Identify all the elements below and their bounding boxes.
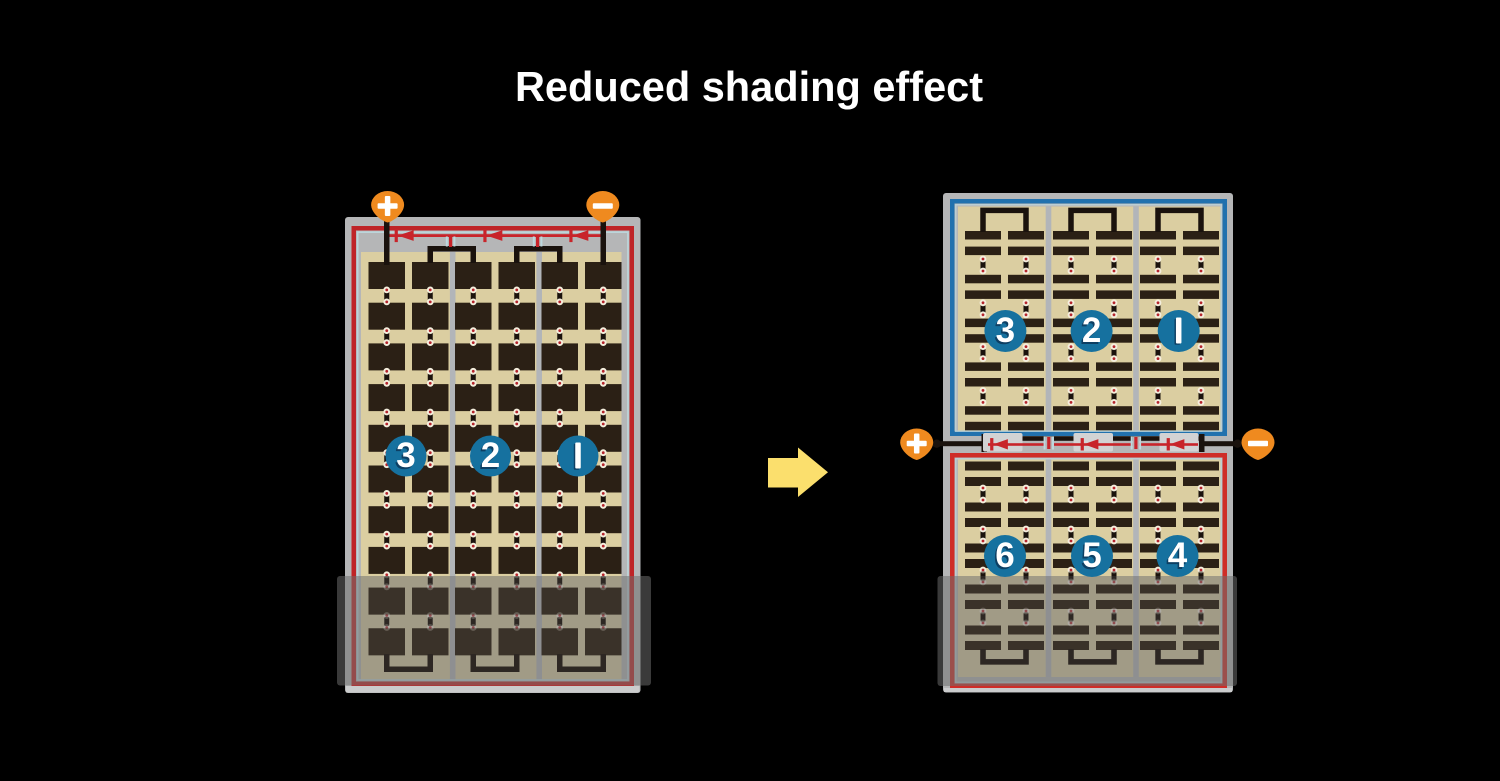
svg-text:2: 2 xyxy=(1082,311,1101,350)
svg-text:6: 6 xyxy=(995,536,1014,575)
svg-text:5: 5 xyxy=(1082,536,1101,575)
svg-text:3: 3 xyxy=(396,436,415,475)
svg-text:3: 3 xyxy=(996,311,1015,350)
svg-text:Reduced shading effect: Reduced shading effect xyxy=(515,63,983,110)
svg-text:2: 2 xyxy=(481,436,500,475)
svg-text:4: 4 xyxy=(1168,536,1188,575)
